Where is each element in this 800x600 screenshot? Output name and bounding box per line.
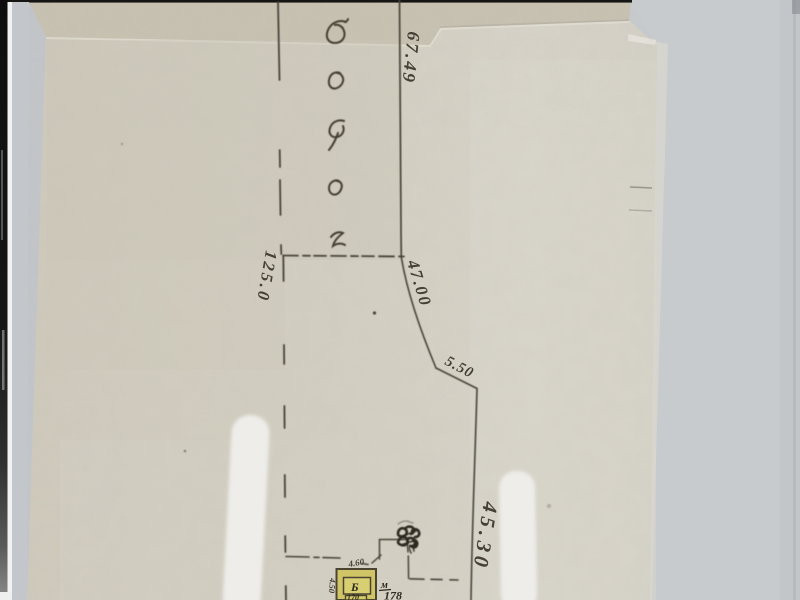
svg-text:4.50: 4.50: [327, 577, 338, 594]
svg-text:Б: Б: [350, 580, 359, 594]
svg-text:170: 170: [347, 593, 359, 600]
svg-text:178: 178: [384, 589, 402, 600]
